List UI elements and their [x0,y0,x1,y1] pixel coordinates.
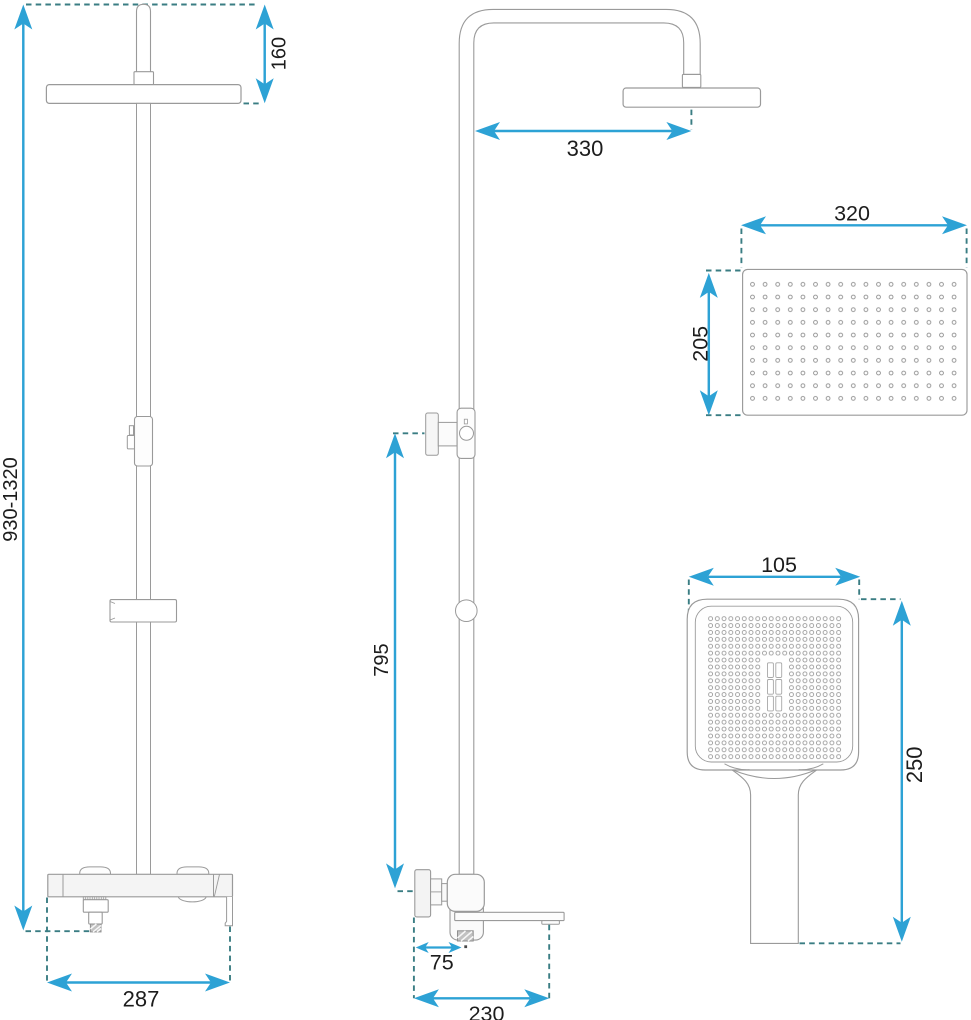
svg-text:930-1320: 930-1320 [0,457,22,542]
svg-text:75: 75 [430,951,454,975]
svg-text:287: 287 [123,987,160,1012]
svg-text:160: 160 [268,37,290,70]
svg-text:320: 320 [834,202,870,226]
svg-text:330: 330 [567,136,604,161]
svg-text:105: 105 [761,553,797,577]
svg-text:250: 250 [902,746,927,783]
svg-text:795: 795 [371,643,393,676]
svg-text:230: 230 [469,1002,505,1020]
svg-text:205: 205 [689,326,713,362]
